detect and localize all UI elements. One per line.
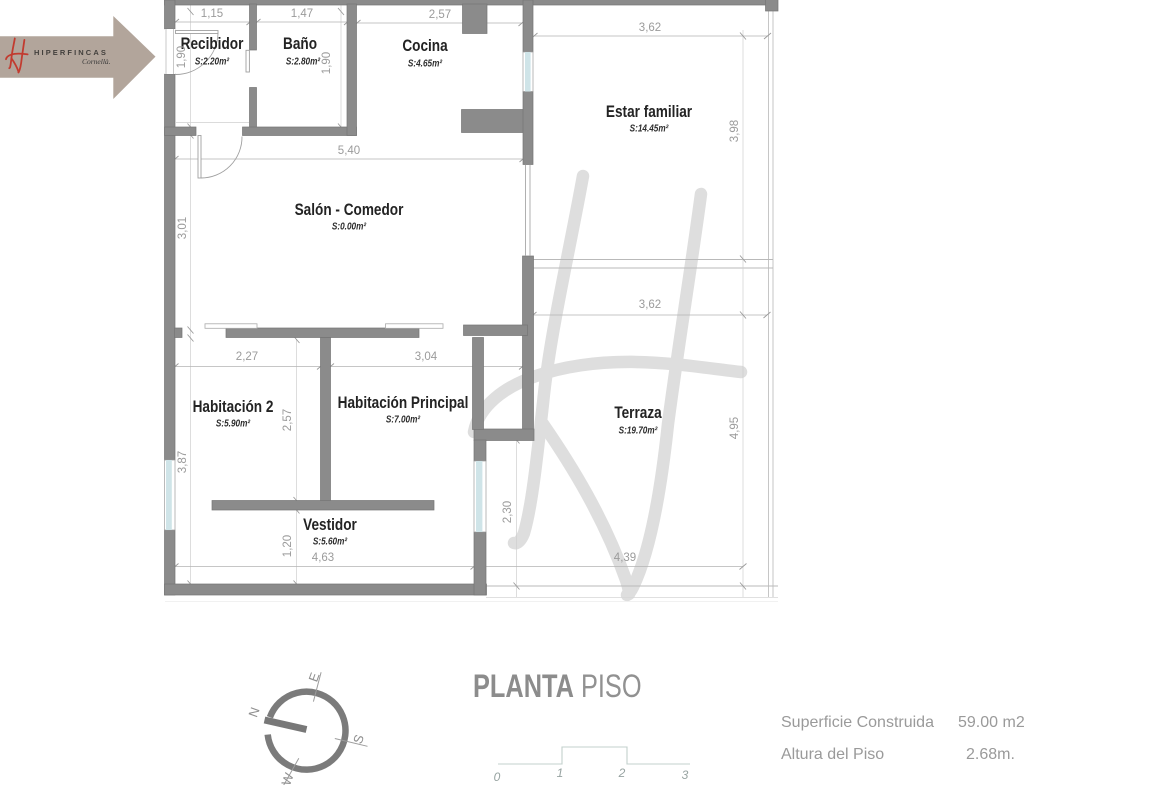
svg-text:W: W (278, 770, 297, 785)
svg-text:1: 1 (557, 766, 564, 780)
svg-text:2: 2 (618, 766, 626, 780)
svg-text:3: 3 (682, 768, 689, 782)
svg-text:E: E (305, 670, 322, 684)
svg-text:S: S (350, 732, 367, 746)
svg-text:N: N (245, 705, 262, 719)
svg-text:0: 0 (494, 770, 501, 784)
